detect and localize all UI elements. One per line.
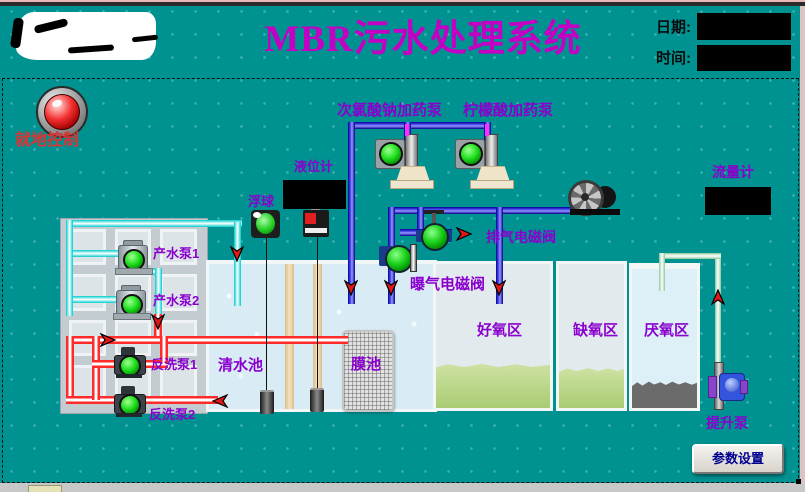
page-title: MBR污水处理系统 bbox=[228, 8, 618, 62]
hmi-screen: MBR污水处理系统 日期: 时间: 就地控制 bbox=[0, 0, 805, 492]
float-ball-label: 浮球 bbox=[248, 195, 274, 208]
sensor-cable bbox=[266, 238, 267, 390]
dose-tick bbox=[405, 124, 409, 136]
aerobic-zone-label: 好氧区 bbox=[477, 323, 522, 338]
citric-pump-label: 柠檬酸加药泵 bbox=[463, 103, 553, 118]
flow-arrow-icon bbox=[151, 308, 165, 330]
window-bottom-strip bbox=[0, 483, 805, 492]
taskbar-chip bbox=[28, 485, 62, 492]
lift-pump-label: 提升泵 bbox=[706, 416, 748, 430]
sludge-dark bbox=[632, 380, 697, 408]
sludge-green bbox=[436, 362, 550, 408]
lift-pump-icon[interactable] bbox=[702, 362, 746, 410]
flow-arrow-icon bbox=[711, 289, 725, 311]
aeration-valve-label: 曝气电磁阀 bbox=[410, 277, 485, 292]
flow-arrow-icon bbox=[492, 274, 506, 296]
settings-button[interactable]: 参数设置 bbox=[692, 444, 784, 474]
pipe-segment bbox=[234, 222, 241, 306]
product-pump-1-label: 产水泵1 bbox=[153, 247, 199, 260]
flow-meter-display bbox=[705, 187, 771, 215]
pipe-segment bbox=[348, 122, 491, 129]
sensor-cylinder bbox=[310, 388, 324, 412]
time-display bbox=[697, 45, 791, 71]
window-right-edge bbox=[800, 6, 805, 483]
backwash-pump-1-icon[interactable] bbox=[112, 347, 146, 379]
flow-arrow-icon bbox=[212, 394, 234, 408]
product-pump-2-label: 产水泵2 bbox=[153, 294, 199, 307]
flow-arrow-icon bbox=[94, 333, 116, 347]
sludge-green bbox=[559, 366, 624, 408]
flow-arrow-icon bbox=[344, 274, 358, 296]
flow-arrow-icon bbox=[230, 240, 244, 262]
flow-arrow-icon bbox=[450, 227, 472, 241]
pipe-segment bbox=[66, 220, 242, 227]
blower-icon[interactable] bbox=[566, 178, 622, 216]
level-sensor-icon[interactable] bbox=[303, 210, 329, 237]
naclo-pump-label: 次氯酸钠加药泵 bbox=[337, 103, 442, 118]
exhaust-valve-label: 排气电磁阀 bbox=[486, 230, 556, 244]
anaerobic-zone-label: 厌氧区 bbox=[644, 323, 689, 338]
flow-arrow-icon bbox=[384, 274, 398, 296]
citric-dosing-pump-icon[interactable] bbox=[452, 134, 514, 190]
local-control-label: 就地控制 bbox=[15, 133, 79, 149]
anoxic-zone-label: 缺氧区 bbox=[573, 323, 618, 338]
pipe-segment bbox=[659, 253, 665, 291]
sensor-cable bbox=[317, 237, 318, 388]
naclo-dosing-pump-icon[interactable] bbox=[372, 134, 434, 190]
backwash-pump-1-label: 反洗泵1 bbox=[151, 358, 197, 371]
window-title-strip bbox=[0, 2, 805, 6]
aeration-solenoid-valve-icon[interactable] bbox=[377, 242, 417, 275]
date-label: 日期: bbox=[656, 20, 691, 35]
pipe-segment bbox=[66, 336, 74, 402]
indicator-lamp-icon[interactable] bbox=[36, 86, 88, 138]
float-ball-icon[interactable] bbox=[251, 210, 280, 238]
product-pump-1-icon[interactable] bbox=[115, 240, 151, 274]
backwash-pump-2-icon[interactable] bbox=[112, 386, 146, 418]
backwash-pump-2-label: 反洗泵2 bbox=[149, 408, 195, 421]
pipe-segment bbox=[73, 250, 119, 257]
logo-redacted bbox=[16, 12, 156, 60]
clean-water-tank-label: 清水池 bbox=[218, 358, 263, 373]
exhaust-solenoid-valve-icon[interactable] bbox=[416, 210, 452, 252]
pipe-segment bbox=[66, 220, 73, 316]
time-label: 时间: bbox=[656, 51, 691, 66]
level-meter-display bbox=[283, 180, 346, 209]
float-cylinder bbox=[260, 390, 274, 414]
dose-tick bbox=[485, 124, 489, 136]
flow-meter-label: 流量计 bbox=[712, 165, 754, 179]
marquee-handle bbox=[796, 479, 801, 484]
date-display bbox=[697, 13, 791, 40]
membrane-tank-label: 膜池 bbox=[351, 357, 381, 372]
level-meter-label: 液位计 bbox=[294, 160, 333, 173]
pipe-segment bbox=[659, 253, 721, 259]
product-pump-2-icon[interactable] bbox=[113, 285, 149, 319]
